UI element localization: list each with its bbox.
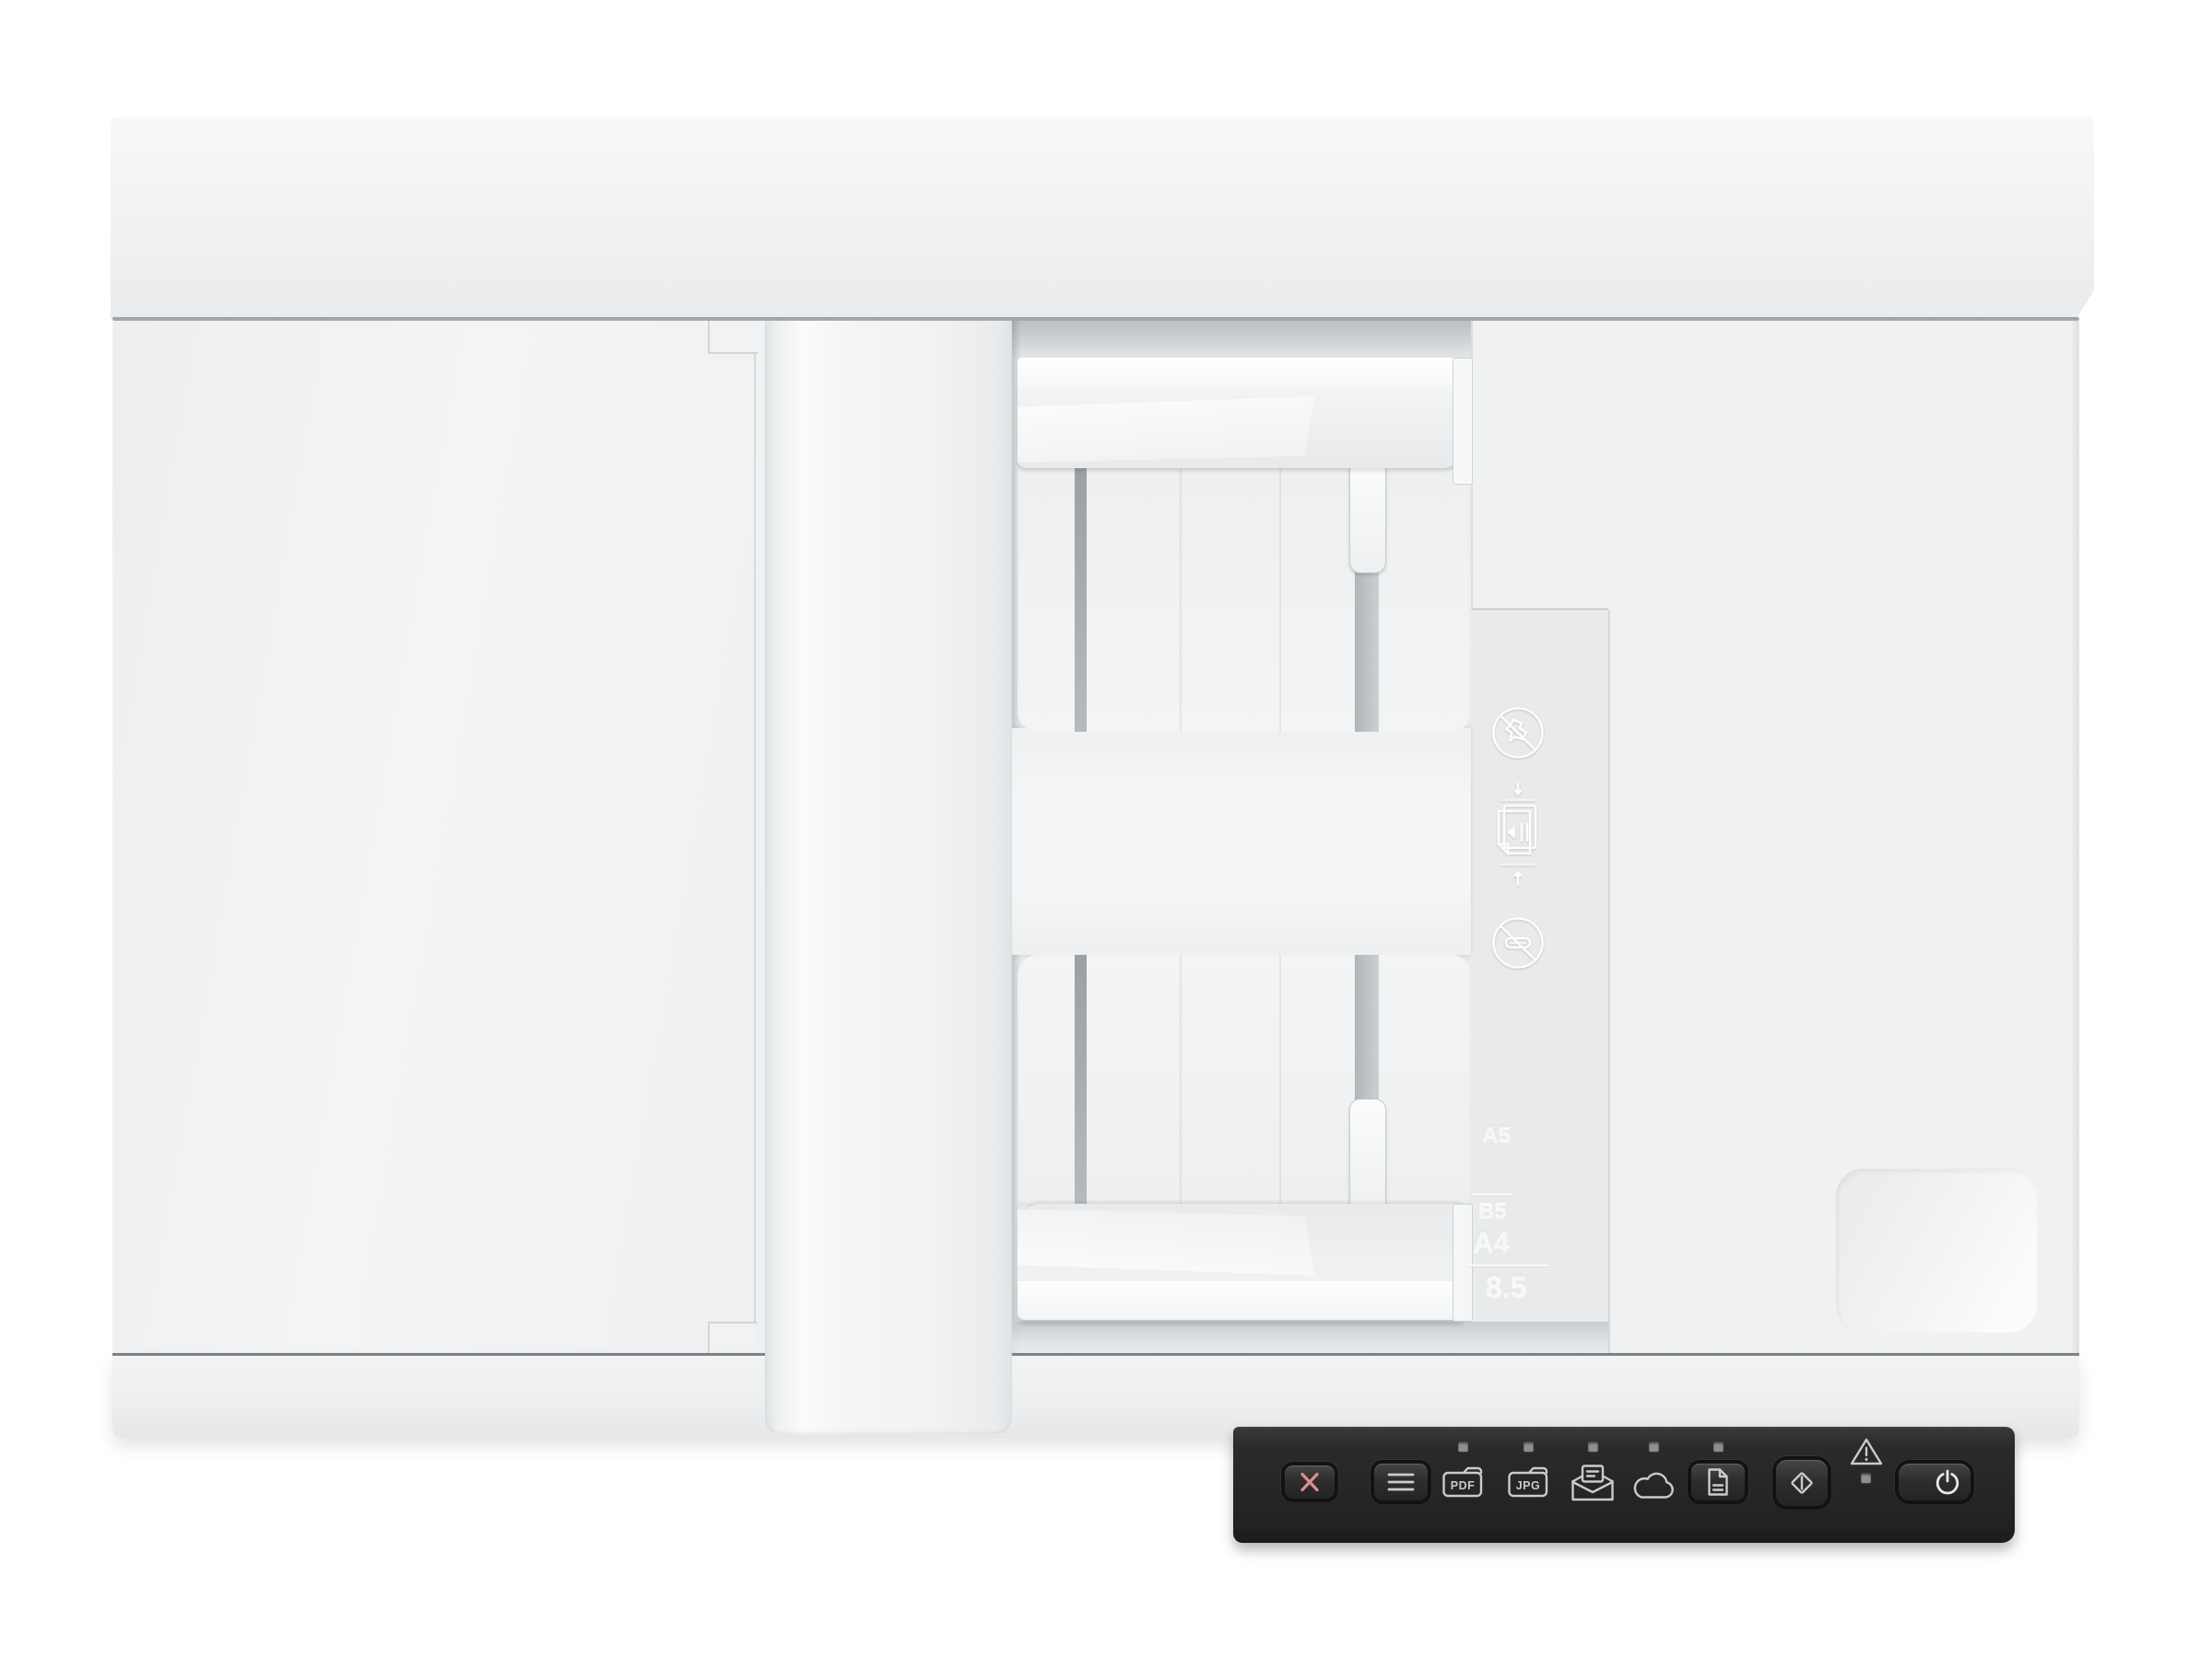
document-icon xyxy=(1706,1467,1730,1497)
tray-panel-seam xyxy=(1180,955,1182,1206)
cancel-button[interactable] xyxy=(1285,1465,1335,1499)
no-wrinkled-paper-icon xyxy=(1489,704,1547,761)
body-right-edge-shade xyxy=(2070,321,2079,1353)
error-indicator xyxy=(1849,1436,1884,1467)
lid-hinge-tab-bottom xyxy=(708,1322,758,1355)
jpg-led xyxy=(1524,1441,1534,1452)
guide-rail-slot xyxy=(1075,466,1087,732)
paper-guide-bottom-endcap xyxy=(1453,1204,1473,1322)
document-feed-button[interactable] xyxy=(1691,1464,1745,1500)
paper-guide-bottom-bar xyxy=(1018,1281,1465,1322)
power-button[interactable] xyxy=(1899,1464,1971,1500)
jpg-file-icon: JPG xyxy=(1507,1465,1549,1499)
cloud-led xyxy=(1649,1441,1659,1452)
tray-right-step-panel xyxy=(1471,321,1608,610)
scan-to-pdf-button[interactable]: PDF xyxy=(1441,1465,1484,1499)
pdf-led xyxy=(1458,1441,1468,1452)
lid-hinge-column xyxy=(765,321,1012,1434)
svg-text:PDF: PDF xyxy=(1451,1479,1476,1492)
tray-panel-seam xyxy=(1279,955,1281,1206)
paper-size-tick xyxy=(1473,1194,1513,1195)
tray-front-shadow xyxy=(1012,1322,1608,1353)
control-panel: PDF JPG xyxy=(1233,1427,2015,1543)
paper-guide-top-flap[interactable] xyxy=(1018,396,1314,463)
power-icon xyxy=(1934,1468,1961,1496)
paper-size-letter: 8.5 xyxy=(1486,1270,1526,1304)
paper-width-slider-handle[interactable] xyxy=(1349,463,1386,573)
document-led xyxy=(1713,1441,1724,1452)
menu-lines-icon xyxy=(1385,1471,1417,1493)
start-scan-diamond-icon xyxy=(1783,1465,1820,1501)
email-led xyxy=(1588,1441,1598,1452)
start-scan-button[interactable] xyxy=(1776,1460,1828,1506)
tray-panel-seam xyxy=(1279,466,1281,732)
x-cancel-icon xyxy=(1296,1470,1324,1494)
tray-fold-band xyxy=(1012,728,1471,955)
scanner-rear-cover xyxy=(111,116,2094,319)
no-paperclips-icon xyxy=(1489,914,1547,971)
cloud-icon xyxy=(1631,1471,1676,1500)
adf-tray-lower-panel xyxy=(1018,955,1471,1206)
paper-stack-alignment-icon xyxy=(1478,780,1558,890)
paper-size-b5: B5 xyxy=(1478,1198,1507,1224)
adf-tray-upper-panel xyxy=(1018,466,1471,732)
error-led xyxy=(1861,1473,1871,1483)
front-base-strip xyxy=(112,1353,2079,1438)
right-panel-seam xyxy=(1608,610,1610,1353)
paper-size-a4: A4 xyxy=(1473,1226,1510,1259)
paper-size-tick xyxy=(1467,1265,1548,1266)
embossed-grip-bump xyxy=(1836,1169,2037,1333)
warning-triangle-icon xyxy=(1849,1436,1884,1467)
email-envelope-icon xyxy=(1569,1464,1617,1502)
flatbed-lid[interactable] xyxy=(112,321,765,1353)
scan-to-jpg-button[interactable]: JPG xyxy=(1507,1465,1549,1499)
scanner-top-view-photo: A5 B5 A4 8.5 PDF xyxy=(0,0,2212,1659)
lid-hinge-tab-top xyxy=(708,321,758,354)
svg-text:JPG: JPG xyxy=(1516,1479,1541,1492)
paper-guide-top-endcap xyxy=(1453,358,1473,485)
pdf-file-icon: PDF xyxy=(1441,1465,1484,1499)
paper-guide-bottom-flap[interactable] xyxy=(1018,1209,1314,1276)
menu-button[interactable] xyxy=(1374,1464,1428,1500)
guide-rail-slot xyxy=(1075,955,1087,1206)
paper-width-slider-handle[interactable] xyxy=(1349,1099,1386,1209)
scan-to-cloud-button[interactable] xyxy=(1631,1471,1676,1500)
tray-panel-seam xyxy=(1180,466,1182,732)
scan-to-email-button[interactable] xyxy=(1569,1464,1617,1502)
paper-size-a5: A5 xyxy=(1482,1123,1511,1148)
lid-panel-seam xyxy=(754,352,756,1322)
